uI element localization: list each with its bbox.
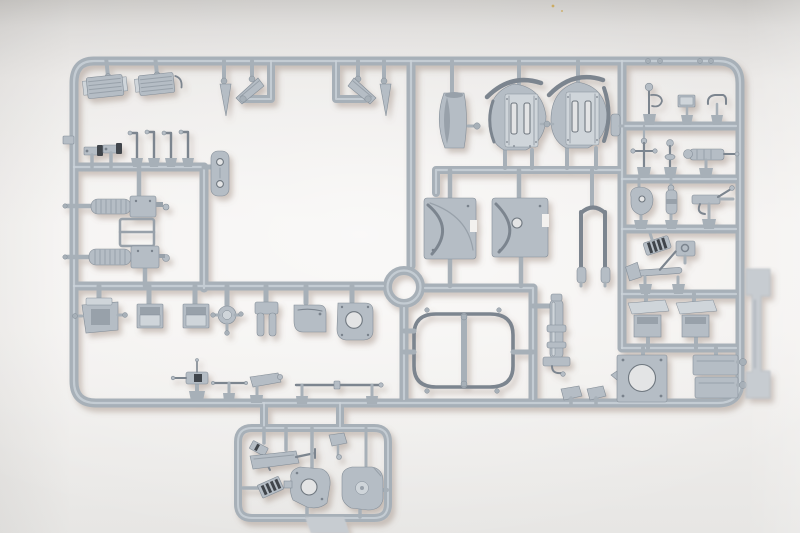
gate-bump bbox=[698, 59, 703, 64]
spade-bracket-assembly-left bbox=[220, 61, 264, 116]
rail-tab bbox=[63, 136, 74, 144]
engine-muffler-b bbox=[63, 246, 170, 286]
stowage-lid bbox=[678, 95, 695, 125]
tow-frame bbox=[577, 170, 610, 286]
rounded-box bbox=[294, 286, 326, 332]
gun-shield-b bbox=[541, 61, 609, 168]
cylinder-mount bbox=[665, 179, 678, 229]
cross-lever bbox=[631, 126, 657, 178]
gun-cradle-b bbox=[492, 170, 549, 286]
gate-bump bbox=[709, 59, 714, 64]
engine-muffler-a bbox=[63, 167, 169, 217]
u-bracket bbox=[255, 286, 278, 336]
fan-housing bbox=[337, 286, 373, 340]
tie-rod bbox=[211, 381, 247, 401]
curved-duct bbox=[439, 61, 480, 148]
photo-of-model-kit-sprue bbox=[0, 0, 800, 533]
stowage-box-a bbox=[137, 286, 163, 328]
pivot-block bbox=[631, 179, 653, 229]
turret-base-plate bbox=[611, 348, 667, 402]
dust-speck bbox=[561, 10, 563, 12]
pick-axe bbox=[625, 251, 685, 294]
housing-with-boss bbox=[342, 428, 387, 517]
gun-shield-a bbox=[487, 61, 546, 168]
tool-bracket bbox=[329, 433, 347, 460]
mg-mount bbox=[171, 359, 208, 402]
gate-bump bbox=[646, 59, 651, 64]
jack bbox=[533, 294, 570, 376]
mount-frame bbox=[120, 219, 154, 246]
hull-plate-box-a bbox=[628, 294, 669, 348]
gate-bump bbox=[658, 59, 663, 64]
turret-race-ring bbox=[404, 308, 533, 394]
runner-frame bbox=[63, 59, 740, 519]
latch-box bbox=[676, 241, 695, 263]
dust-speck bbox=[552, 5, 555, 8]
stowage-bracket bbox=[73, 286, 128, 333]
moulding-tag bbox=[746, 269, 770, 398]
shift-lever bbox=[664, 140, 677, 178]
lever-arms bbox=[128, 130, 194, 167]
spade-bracket-assembly-right bbox=[348, 61, 391, 116]
track-pad bbox=[243, 476, 284, 498]
sprue-photo-canvas bbox=[0, 0, 800, 533]
idler-hub bbox=[211, 286, 244, 335]
sprue bbox=[63, 58, 770, 533]
hull-plate-box-b bbox=[676, 294, 717, 348]
moulding-tab bbox=[305, 517, 349, 533]
periscope-figure bbox=[643, 83, 662, 125]
clamp bbox=[708, 95, 726, 125]
housing-with-hole bbox=[284, 428, 330, 517]
mg-bracket bbox=[692, 186, 734, 229]
finned-breech bbox=[684, 149, 740, 178]
gun-cradle-a bbox=[424, 170, 477, 286]
